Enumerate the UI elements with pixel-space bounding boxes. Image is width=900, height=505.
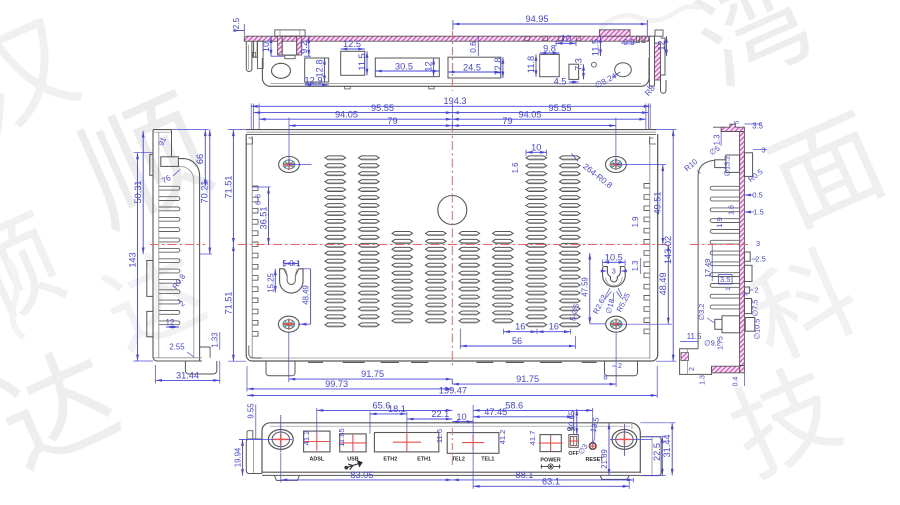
svg-text:11.5: 11.5 — [357, 53, 367, 70]
svg-text:194.3: 194.3 — [444, 96, 467, 106]
svg-text:94.05: 94.05 — [519, 109, 542, 119]
svg-text:15.25: 15.25 — [266, 273, 275, 293]
svg-text:58.6: 58.6 — [505, 400, 523, 410]
svg-text:1.3: 1.3 — [631, 261, 640, 272]
svg-text:∅3.2: ∅3.2 — [697, 304, 706, 321]
svg-text:12: 12 — [657, 40, 667, 50]
svg-text:0.9: 0.9 — [623, 38, 635, 47]
svg-text:70.21: 70.21 — [200, 181, 210, 204]
svg-text:1.33: 1.33 — [211, 332, 220, 347]
svg-text:1.9: 1.9 — [631, 217, 640, 228]
svg-text:POWER: POWER — [540, 458, 560, 464]
svg-text:41.2: 41.2 — [498, 430, 507, 445]
svg-text:199.47: 199.47 — [439, 385, 467, 395]
svg-text:1.9: 1.9 — [715, 217, 724, 228]
svg-text:9.55: 9.55 — [247, 403, 256, 419]
svg-text:2.55: 2.55 — [169, 343, 185, 352]
svg-text:99.73: 99.73 — [325, 379, 348, 389]
svg-text:1.5: 1.5 — [753, 208, 764, 217]
svg-text:9.8: 9.8 — [543, 44, 556, 54]
svg-text:18.1: 18.1 — [388, 404, 406, 414]
svg-text:48.49: 48.49 — [301, 285, 310, 305]
svg-text:1: 1 — [725, 287, 732, 291]
svg-text:ADSL: ADSL — [309, 457, 324, 463]
svg-text:9.2: 9.2 — [299, 41, 309, 54]
svg-text:12.9: 12.9 — [305, 76, 323, 86]
svg-text:10: 10 — [456, 412, 466, 422]
svg-text:31.44: 31.44 — [662, 435, 672, 458]
svg-text:143.02: 143.02 — [663, 236, 673, 264]
svg-text:41.2: 41.2 — [302, 431, 311, 446]
svg-text:2: 2 — [618, 363, 622, 370]
svg-text:91.75: 91.75 — [516, 374, 539, 384]
svg-text:41.7: 41.7 — [528, 431, 537, 446]
svg-text:63.1: 63.1 — [542, 477, 560, 487]
svg-text:94.05: 94.05 — [335, 109, 358, 119]
svg-text:3.5: 3.5 — [752, 122, 764, 131]
svg-text:19.94: 19.94 — [233, 447, 242, 467]
svg-text:TEL2: TEL2 — [452, 457, 465, 463]
svg-text:∅7.5: ∅7.5 — [751, 300, 760, 317]
svg-text:30.5: 30.5 — [395, 62, 413, 72]
svg-text:47.59: 47.59 — [581, 277, 590, 297]
svg-text:91.75: 91.75 — [361, 369, 384, 379]
svg-text:5: 5 — [734, 120, 741, 124]
svg-text:3: 3 — [612, 267, 616, 276]
svg-text:9: 9 — [743, 292, 750, 296]
svg-text:16: 16 — [515, 322, 525, 332]
svg-text:11.5: 11.5 — [687, 332, 702, 341]
svg-text:10.65: 10.65 — [568, 410, 577, 430]
svg-text:16: 16 — [549, 322, 559, 332]
svg-text:ETH2: ETH2 — [383, 457, 397, 463]
svg-text:8: 8 — [603, 373, 607, 382]
svg-text:∅13.2: ∅13.2 — [723, 156, 732, 177]
svg-text:0.5: 0.5 — [752, 191, 763, 200]
svg-text:11.8: 11.8 — [526, 56, 536, 73]
svg-text:12.5: 12.5 — [343, 39, 361, 49]
svg-text:95.55: 95.55 — [371, 103, 394, 113]
svg-text:2: 2 — [754, 286, 758, 295]
svg-text:10: 10 — [531, 142, 541, 152]
svg-text:11.5: 11.5 — [591, 39, 601, 56]
svg-text:2.5: 2.5 — [755, 255, 766, 264]
svg-text:12: 12 — [166, 318, 175, 327]
svg-text:TEL1: TEL1 — [481, 457, 494, 463]
svg-text:22.5: 22.5 — [652, 443, 662, 461]
svg-text:71.51: 71.51 — [223, 176, 233, 199]
svg-text:24.5: 24.5 — [463, 63, 481, 73]
svg-text:10: 10 — [561, 33, 571, 43]
svg-text:1.75: 1.75 — [718, 336, 725, 350]
svg-text:21.89: 21.89 — [600, 449, 609, 469]
svg-text:48.49: 48.49 — [658, 273, 668, 296]
svg-text:10: 10 — [261, 42, 271, 52]
svg-text:USB: USB — [347, 457, 358, 463]
svg-text:22.1: 22.1 — [431, 409, 449, 419]
svg-text:1.6: 1.6 — [511, 163, 520, 174]
svg-text:31.44: 31.44 — [176, 370, 199, 380]
svg-text:3: 3 — [756, 239, 760, 248]
svg-text:49.51: 49.51 — [653, 192, 663, 215]
svg-text:12.8: 12.8 — [493, 58, 503, 76]
svg-text:11.85: 11.85 — [337, 428, 346, 446]
svg-text:94.95: 94.95 — [526, 14, 549, 24]
svg-text:12: 12 — [424, 61, 434, 71]
svg-text:3.5: 3.5 — [720, 275, 730, 284]
svg-text:79: 79 — [387, 116, 397, 126]
svg-text:2.5: 2.5 — [232, 17, 241, 29]
svg-text:7.3: 7.3 — [574, 58, 584, 71]
svg-text:ETH1: ETH1 — [417, 457, 431, 463]
svg-text:2: 2 — [689, 367, 696, 371]
svg-text:66: 66 — [195, 154, 205, 164]
svg-text:1.6: 1.6 — [729, 205, 736, 215]
svg-text:3: 3 — [761, 146, 765, 155]
svg-text:0.6: 0.6 — [469, 41, 478, 53]
svg-text:88.1: 88.1 — [515, 470, 533, 480]
svg-text:56: 56 — [512, 336, 522, 346]
svg-text:1.3: 1.3 — [713, 135, 722, 146]
svg-text:83.05: 83.05 — [350, 470, 373, 480]
svg-text:0.4: 0.4 — [733, 377, 740, 387]
svg-text:1.3: 1.3 — [700, 375, 707, 385]
svg-text:79: 79 — [502, 116, 512, 126]
svg-text:6-6: 6-6 — [254, 194, 263, 205]
svg-text:95.55: 95.55 — [549, 103, 572, 113]
svg-text:17.49: 17.49 — [703, 258, 712, 277]
svg-text:47.45: 47.45 — [484, 407, 507, 417]
svg-text:50.31: 50.31 — [133, 181, 143, 204]
svg-text:4.5: 4.5 — [554, 77, 567, 87]
svg-text:71.51: 71.51 — [223, 292, 233, 315]
svg-text:143: 143 — [127, 252, 137, 267]
svg-text:10.5: 10.5 — [605, 252, 623, 262]
svg-text:36.51: 36.51 — [258, 207, 268, 230]
svg-text:11.6: 11.6 — [435, 429, 444, 443]
svg-text:∅10.5: ∅10.5 — [753, 319, 762, 340]
